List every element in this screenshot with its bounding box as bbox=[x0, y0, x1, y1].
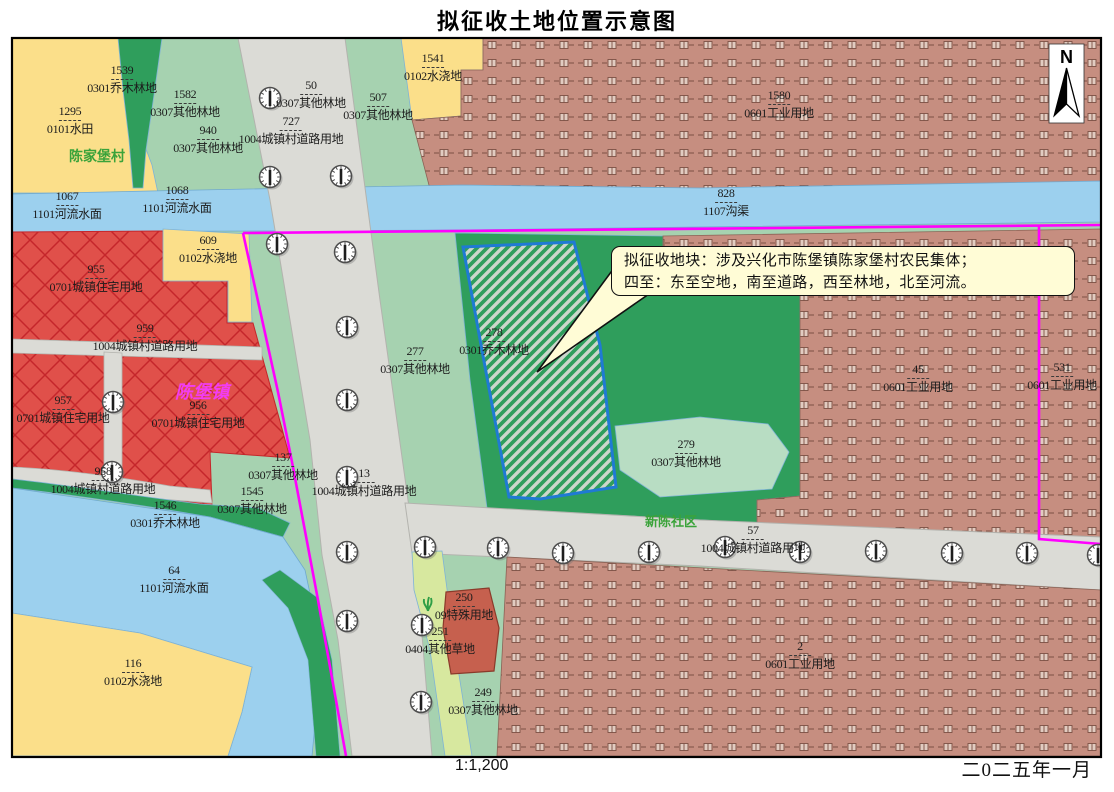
region-industrial-1580 bbox=[412, 38, 1101, 189]
callout-line1: 拟征收地块：涉及兴化市陈堡镇陈家堡村农民集体； bbox=[624, 250, 1074, 272]
map-svg: N bbox=[0, 0, 1114, 792]
region-special-250 bbox=[443, 588, 499, 674]
scale-text: 1:1,200 bbox=[455, 757, 508, 775]
callout-box: 拟征收地块：涉及兴化市陈堡镇陈家堡村农民集体； 四至：东至空地，南至道路，西至林… bbox=[611, 246, 1075, 296]
date-text: 二0二五年一月 bbox=[961, 755, 1092, 782]
north-label: N bbox=[1060, 47, 1073, 67]
callout-line2: 四至：东至空地，南至道路，西至林地，北至河流。 bbox=[624, 272, 1074, 294]
map-sheet: 拟征收土地位置示意图 bbox=[0, 0, 1114, 792]
region-industrial-2 bbox=[497, 557, 1101, 756]
north-arrow: N bbox=[1049, 44, 1084, 123]
